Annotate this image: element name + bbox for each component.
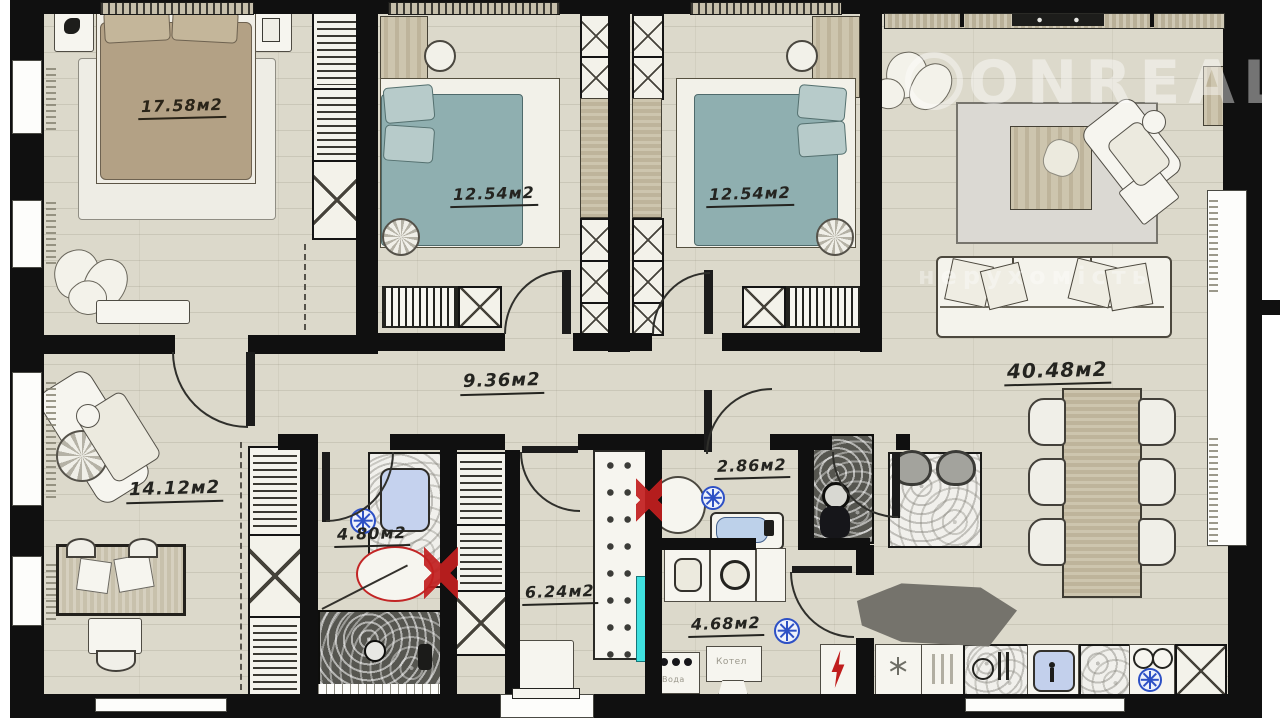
wall xyxy=(798,434,814,546)
room-label-corridor: 9.36м2 xyxy=(460,369,544,396)
person-head xyxy=(76,404,100,428)
dining-chair xyxy=(1028,458,1066,506)
wall xyxy=(248,335,358,354)
wall xyxy=(573,333,652,351)
pouf xyxy=(816,218,854,256)
dining-chair xyxy=(1028,398,1066,446)
room-label-wc: 2.86м2 xyxy=(714,455,790,480)
decor-icon xyxy=(262,18,280,42)
wall xyxy=(856,638,874,696)
curtain-line xyxy=(240,442,242,690)
room-label-bedroom-2: 12.54м2 xyxy=(450,183,538,208)
faucet-icon xyxy=(764,520,774,536)
window-sill xyxy=(690,2,842,15)
page-margin xyxy=(1262,0,1280,718)
sink-icon xyxy=(1033,650,1075,692)
room-label-office: 14.12м2 xyxy=(126,477,224,505)
wall xyxy=(300,450,318,696)
wall xyxy=(10,335,175,354)
curtain-line xyxy=(304,244,306,330)
cabinet xyxy=(458,286,502,328)
small-desk xyxy=(88,618,142,654)
plate-icon xyxy=(972,658,994,680)
closet-box xyxy=(632,218,664,262)
vent-fan-icon xyxy=(1138,668,1162,692)
room-label-bedroom-3: 12.54м2 xyxy=(706,183,794,208)
cabinet-marking xyxy=(932,654,935,684)
toilet-icon xyxy=(820,506,850,538)
radiator-icon xyxy=(46,560,56,620)
wall xyxy=(722,333,882,351)
pot-icon xyxy=(1152,648,1173,669)
dining-chair xyxy=(1138,398,1176,446)
hall-shelf xyxy=(455,590,507,656)
pillow xyxy=(797,120,847,157)
cabinet-marking xyxy=(941,654,944,684)
boiler-label: Котел xyxy=(716,658,747,667)
room-label-laundry: 4.68м2 xyxy=(688,613,764,638)
window xyxy=(95,698,227,712)
vent-fan-icon xyxy=(774,618,800,644)
papers xyxy=(76,558,112,594)
entry-door-leaf xyxy=(512,688,580,699)
door-arc xyxy=(172,352,248,428)
shower-drain xyxy=(364,640,386,662)
room-label-bedroom-1: 17.58м2 xyxy=(138,95,226,120)
door-arc xyxy=(504,270,564,334)
table-chair xyxy=(66,538,96,558)
wall xyxy=(505,450,520,696)
washer-icon xyxy=(720,560,750,590)
lamp-icon xyxy=(64,18,80,34)
radiator-icon xyxy=(46,378,56,498)
wall xyxy=(662,434,706,450)
closet-shelves xyxy=(580,98,610,218)
room-label-hall: 6.24м2 xyxy=(522,581,598,606)
pouf xyxy=(382,218,420,256)
snowflake-icon xyxy=(888,656,908,676)
page-margin xyxy=(0,0,10,718)
wardrobe-rail xyxy=(248,616,302,696)
closet-box xyxy=(632,260,664,304)
desk-chair xyxy=(424,40,456,72)
wall xyxy=(390,434,505,450)
person-head xyxy=(1142,110,1166,134)
cabinet-marking xyxy=(950,654,953,684)
wardrobe-rail xyxy=(312,12,362,90)
sofa-pillow xyxy=(1105,263,1154,312)
dining-chair xyxy=(1028,518,1066,566)
wall xyxy=(662,538,756,550)
window xyxy=(12,556,42,626)
hall-rail xyxy=(455,452,507,526)
wardrobe-rail xyxy=(248,446,302,536)
wall xyxy=(578,434,648,450)
wall xyxy=(356,12,378,354)
kitchen-island xyxy=(852,582,1017,650)
bench xyxy=(516,640,574,690)
dining-chair xyxy=(1138,458,1176,506)
hall-rail xyxy=(455,524,507,592)
water-label: Вода xyxy=(662,676,685,684)
window-sill xyxy=(388,2,560,15)
toilet-icon xyxy=(356,546,434,602)
door-arc xyxy=(706,388,772,454)
radiator-icon xyxy=(1209,196,1218,292)
laundry-counter xyxy=(756,548,786,602)
wall xyxy=(856,545,874,575)
radiator-icon xyxy=(786,286,860,328)
window-sill xyxy=(100,2,254,15)
pillow xyxy=(383,84,436,124)
closet-shelves xyxy=(632,98,662,218)
pot-icon xyxy=(1133,648,1154,669)
door-arc xyxy=(520,452,580,512)
red-plumbing-cross-icon xyxy=(636,470,662,530)
wall xyxy=(896,434,910,450)
wall xyxy=(378,333,505,351)
cabinet xyxy=(742,286,786,328)
window xyxy=(965,698,1125,712)
room-label-living: 40.48м2 xyxy=(1004,357,1111,387)
wall xyxy=(278,434,318,450)
table-chair xyxy=(128,538,158,558)
dining-chair xyxy=(1138,518,1176,566)
wardrobe-rail xyxy=(312,88,362,162)
window xyxy=(12,372,42,506)
red-plumbing-cross-icon xyxy=(424,544,458,602)
tile-strip xyxy=(318,684,440,694)
desk-chair xyxy=(786,40,818,72)
cutlery-icon xyxy=(1006,652,1009,680)
wall xyxy=(1228,545,1262,718)
dimension-tick xyxy=(1262,300,1280,315)
dining-table xyxy=(1062,388,1142,598)
floor-plan: 17.58м2 12.54м2 12.54м2 xyxy=(0,0,1280,718)
sill-divider xyxy=(960,13,964,27)
radiator-icon xyxy=(46,202,56,264)
bar-stool xyxy=(936,450,976,486)
closet-box xyxy=(632,14,664,58)
room-label-bathroom: 4.80м2 xyxy=(334,523,410,548)
radiator-icon xyxy=(46,64,56,130)
valve-icon xyxy=(684,658,692,666)
counter xyxy=(1079,644,1131,698)
cutlery-icon xyxy=(998,652,1001,680)
vent-fan-icon xyxy=(701,486,725,510)
sideboard xyxy=(96,300,190,324)
radiator-icon xyxy=(1209,438,1218,542)
window xyxy=(12,200,42,268)
radiator-icon xyxy=(382,286,458,328)
dryer-icon xyxy=(674,558,702,592)
window xyxy=(12,60,42,134)
wardrobe-shelf xyxy=(312,160,362,240)
tv-icon xyxy=(1012,14,1104,26)
valve-icon xyxy=(672,658,680,666)
closet-box xyxy=(632,56,664,100)
pillow xyxy=(797,84,848,122)
wardrobe-shelf xyxy=(248,534,302,618)
desk-chair xyxy=(96,650,136,672)
papers xyxy=(113,553,154,593)
kitchen-cabinet xyxy=(1175,644,1227,698)
faucet-icon xyxy=(1050,668,1054,682)
wall xyxy=(608,12,630,352)
wall xyxy=(860,12,882,352)
wall xyxy=(1223,0,1262,190)
shower-fixture xyxy=(418,644,432,670)
sill-divider xyxy=(1150,13,1154,27)
pillow xyxy=(383,124,435,163)
